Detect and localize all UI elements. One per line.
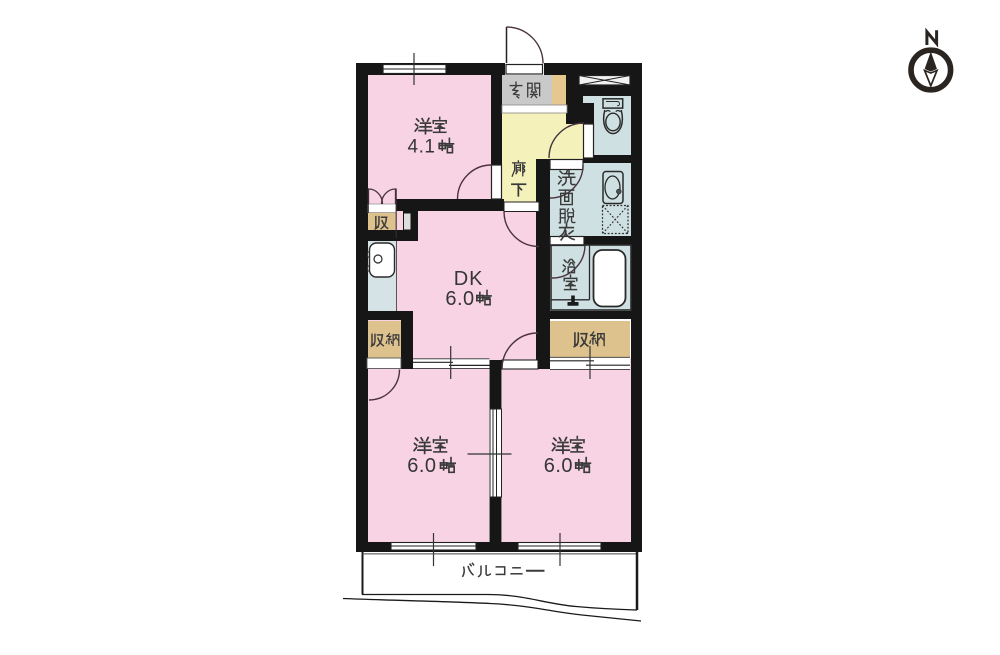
svg-text:6.0: 6.0 — [445, 288, 474, 310]
svg-text:6.0: 6.0 — [544, 455, 573, 477]
svg-text:6.0: 6.0 — [407, 455, 436, 477]
svg-text:4.1: 4.1 — [408, 136, 436, 157]
